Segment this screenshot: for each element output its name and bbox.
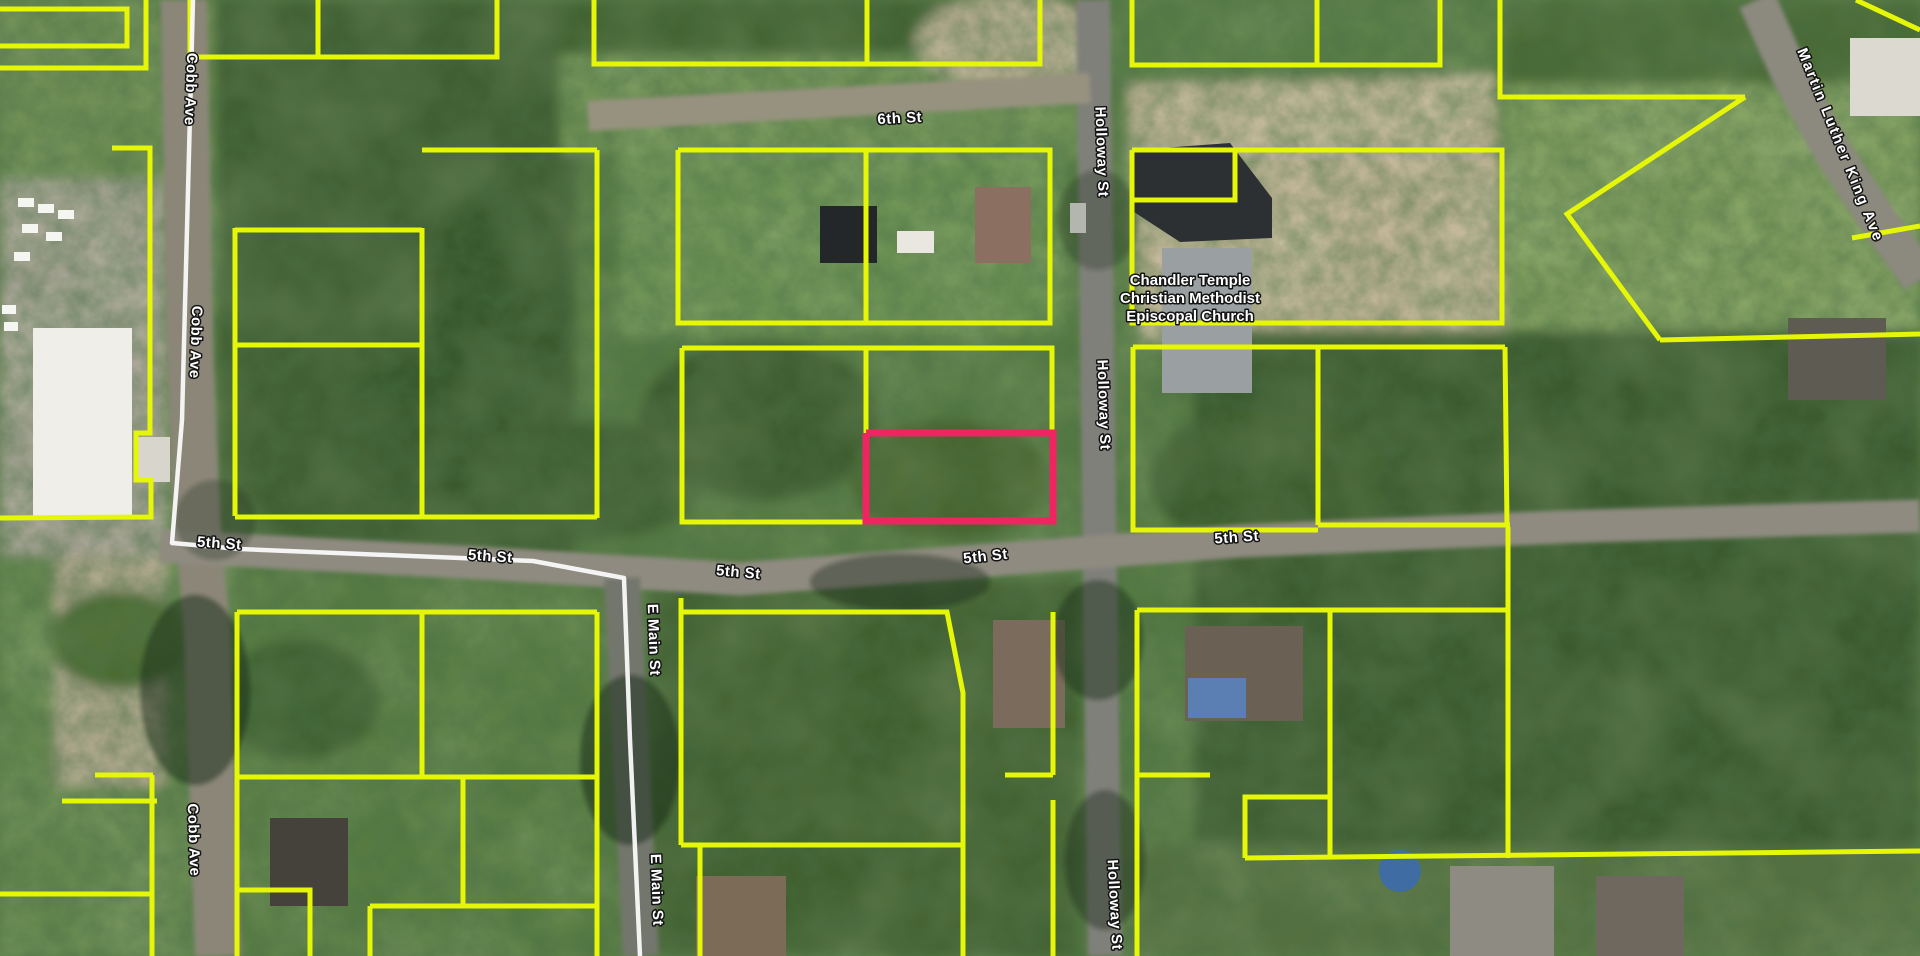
building — [1188, 678, 1246, 718]
building — [2, 305, 16, 314]
street-label-5th-st: 5th St — [1214, 527, 1260, 547]
building — [22, 224, 38, 233]
street-label-e-main-st: E Main St — [644, 604, 664, 677]
building — [58, 210, 74, 219]
building — [696, 876, 786, 956]
building — [14, 252, 30, 261]
street-label-6th-st: 6th St — [877, 109, 923, 128]
street-label-cobb-ave: Cobb Ave — [184, 803, 204, 876]
building — [1850, 38, 1920, 116]
building — [4, 322, 18, 331]
map-viewport[interactable]: 6th StHolloway StHolloway StHolloway StC… — [0, 0, 1920, 956]
building — [1788, 318, 1886, 400]
building — [38, 204, 54, 213]
street-label-holloway-st: Holloway St — [1093, 359, 1113, 450]
street-label-e-main-st: E Main St — [647, 854, 667, 927]
terrain-noise-dark — [0, 0, 1920, 956]
building — [975, 187, 1031, 263]
building — [1596, 876, 1684, 956]
street-label-cobb-ave: Cobb Ave — [186, 305, 206, 378]
building — [18, 198, 34, 207]
street-label-holloway-st: Holloway St — [1091, 106, 1111, 197]
building — [46, 232, 62, 241]
building — [897, 231, 934, 253]
parcel-boundary — [1505, 347, 1507, 525]
building — [137, 437, 170, 482]
building — [1450, 866, 1554, 956]
map-canvas[interactable]: 6th StHolloway StHolloway StHolloway StC… — [0, 0, 1920, 956]
tree-shadow — [140, 595, 250, 785]
poi-label-chandler-temple-church: Christian Methodist — [1120, 290, 1260, 307]
poi-label-chandler-temple-church: Episcopal Church — [1126, 308, 1254, 325]
street-label-5th-st: 5th St — [467, 546, 513, 566]
street-label-5th-st: 5th St — [196, 533, 242, 553]
tree-shadow — [1053, 580, 1143, 700]
poi-label-chandler-temple-church: Chandler Temple — [1130, 272, 1251, 289]
building — [33, 328, 132, 518]
street-label-cobb-ave: Cobb Ave — [181, 52, 201, 125]
